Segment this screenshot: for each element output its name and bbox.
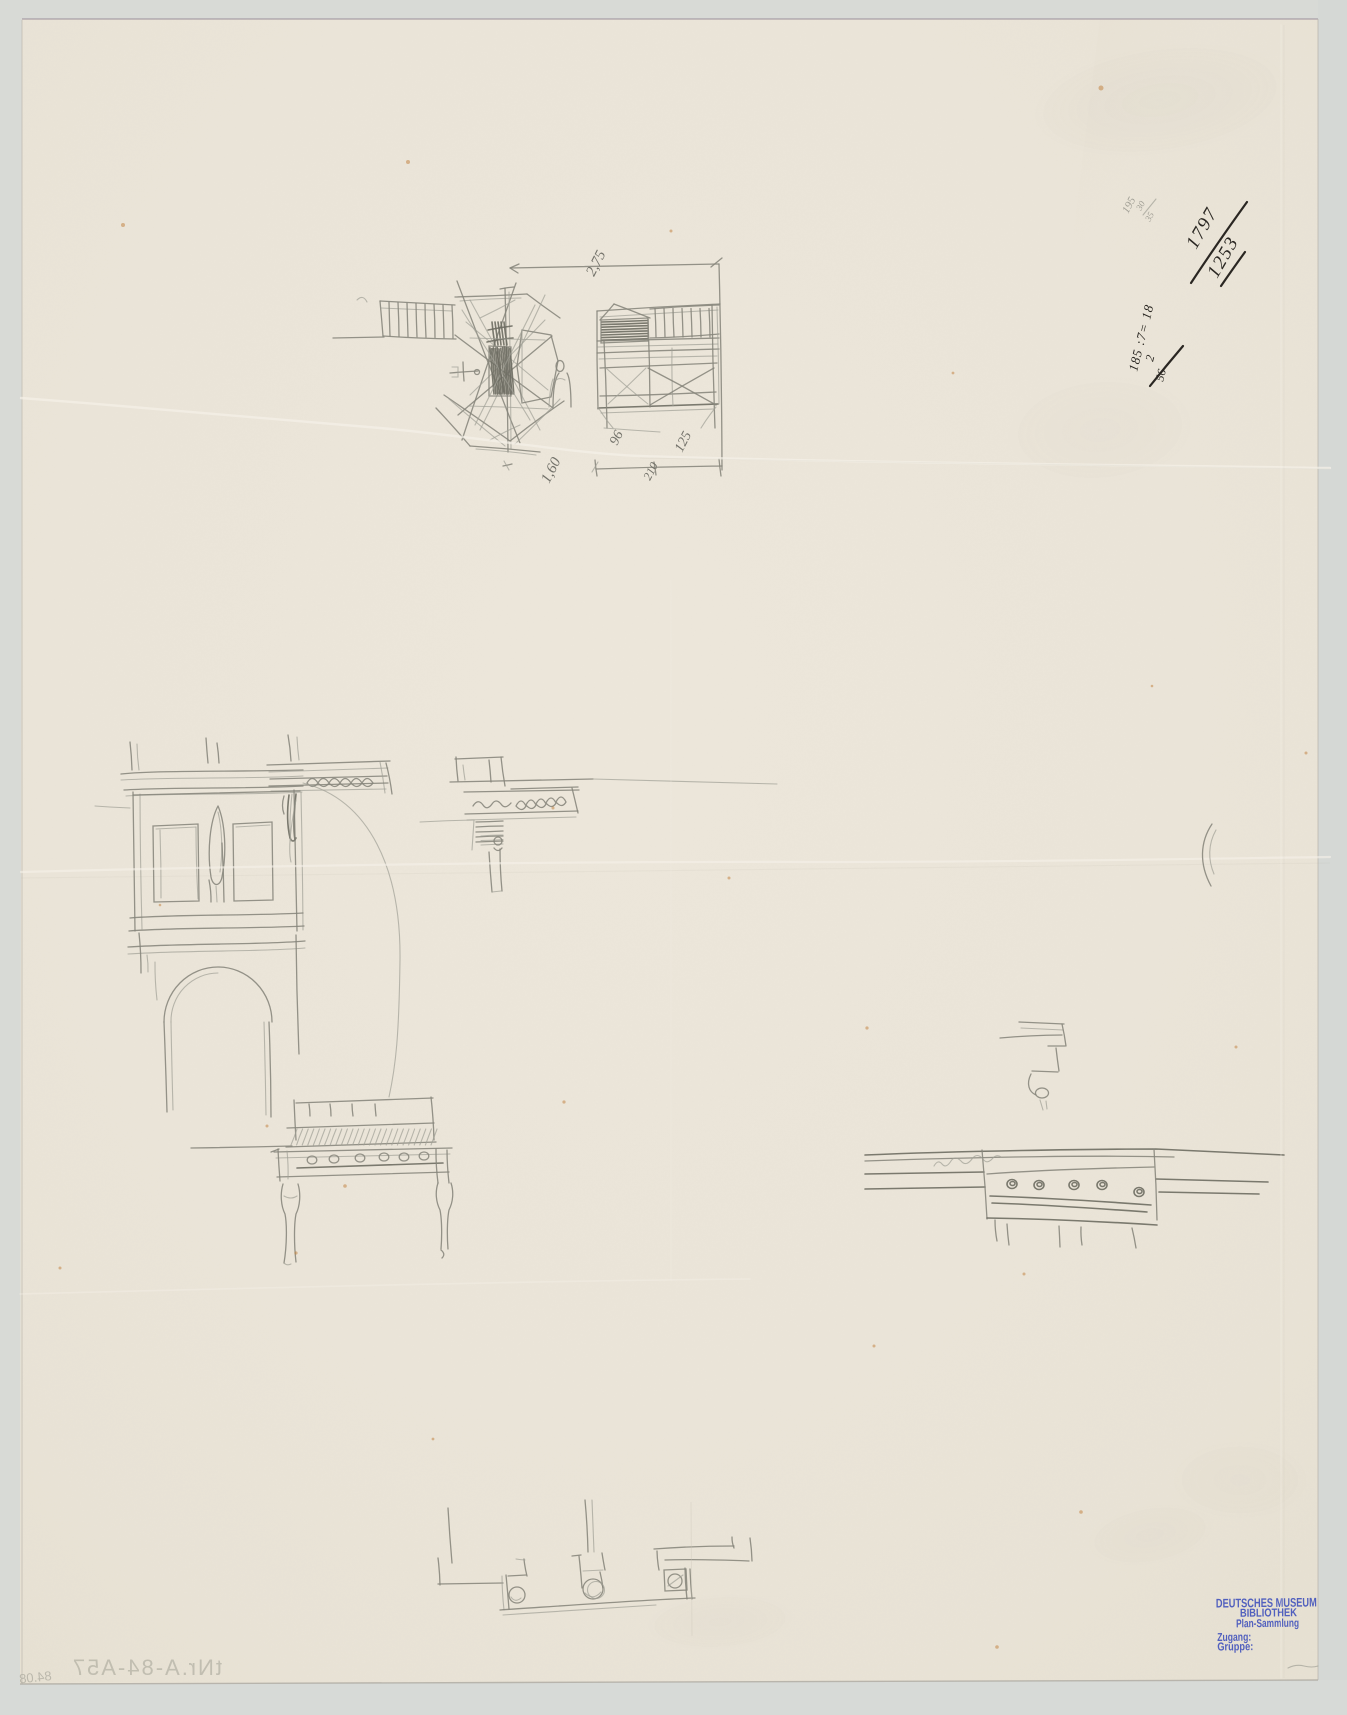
svg-text:Plan-Sammlung: Plan-Sammlung — [1236, 1618, 1299, 1631]
svg-text:Gruppe:: Gruppe: — [1217, 1641, 1253, 1653]
svg-text:tNr.A-84-A57: tNr.A-84-A57 — [71, 1655, 222, 1680]
